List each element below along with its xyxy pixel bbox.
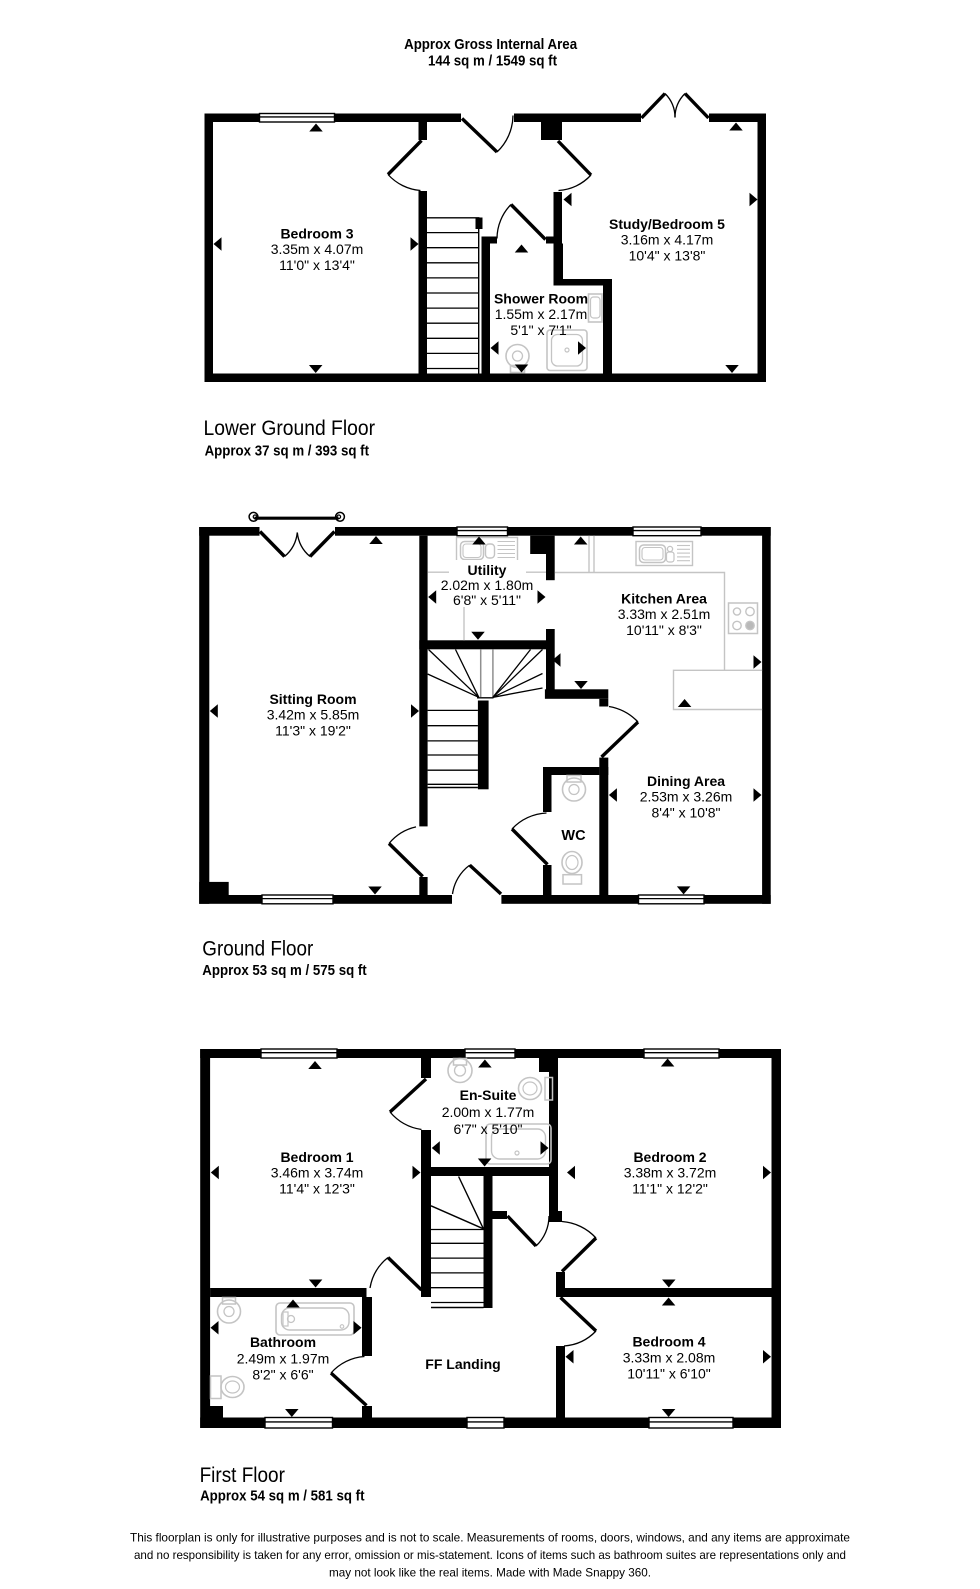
svg-text:8'4" x 10'8": 8'4" x 10'8" — [652, 804, 721, 820]
svg-text:Bedroom 4: Bedroom 4 — [632, 1334, 705, 1350]
svg-text:Bedroom 1: Bedroom 1 — [280, 1149, 353, 1165]
svg-text:11'3" x 19'2": 11'3" x 19'2" — [275, 722, 351, 738]
svg-text:Bedroom 3: Bedroom 3 — [280, 226, 353, 242]
svg-text:Approx 53 sq m / 575 sq ft: Approx 53 sq m / 575 sq ft — [202, 962, 366, 979]
svg-text:Kitchen Area: Kitchen Area — [621, 591, 707, 607]
svg-text:First Floor: First Floor — [200, 1464, 285, 1487]
svg-text:5'1" x 7'1": 5'1" x 7'1" — [510, 322, 571, 338]
svg-text:8'2" x 6'6": 8'2" x 6'6" — [252, 1367, 313, 1383]
svg-text:Dining Area: Dining Area — [647, 773, 725, 789]
svg-text:may not look like the real ite: may not look like the real items. Made w… — [329, 1566, 651, 1580]
svg-text:11'1" x 12'2": 11'1" x 12'2" — [632, 1180, 708, 1196]
svg-text:1.55m x 2.17m: 1.55m x 2.17m — [495, 306, 588, 322]
svg-text:2.02m x 1.80m: 2.02m x 1.80m — [441, 577, 534, 593]
svg-text:10'11" x 6'10": 10'11" x 6'10" — [627, 1366, 711, 1382]
svg-text:144 sq m / 1549 sq ft: 144 sq m / 1549 sq ft — [428, 53, 557, 70]
svg-text:3.42m x 5.85m: 3.42m x 5.85m — [267, 707, 360, 723]
svg-text:En-Suite: En-Suite — [460, 1087, 517, 1103]
svg-text:Shower Room: Shower Room — [494, 291, 588, 307]
svg-text:2.53m x 3.26m: 2.53m x 3.26m — [640, 789, 733, 805]
svg-text:3.46m x 3.74m: 3.46m x 3.74m — [271, 1165, 364, 1181]
svg-text:FF Landing: FF Landing — [425, 1356, 500, 1372]
svg-text:and no responsibility is taken: and no responsibility is taken for any e… — [134, 1548, 846, 1562]
svg-text:11'0" x 13'4": 11'0" x 13'4" — [279, 257, 355, 273]
svg-text:6'8" x 5'11": 6'8" x 5'11" — [453, 592, 521, 608]
svg-text:WC: WC — [561, 828, 586, 844]
svg-text:3.33m x 2.08m: 3.33m x 2.08m — [623, 1350, 716, 1366]
svg-text:3.16m x 4.17m: 3.16m x 4.17m — [621, 232, 714, 248]
svg-text:3.35m x 4.07m: 3.35m x 4.07m — [271, 241, 364, 257]
svg-text:10'11" x 8'3": 10'11" x 8'3" — [626, 622, 702, 638]
svg-text:Utility: Utility — [468, 562, 507, 578]
svg-text:Lower Ground Floor: Lower Ground Floor — [204, 417, 376, 440]
svg-text:11'4" x 12'3": 11'4" x 12'3" — [279, 1180, 355, 1196]
svg-text:2.49m x 1.97m: 2.49m x 1.97m — [237, 1350, 330, 1366]
svg-text:Study/Bedroom 5: Study/Bedroom 5 — [609, 216, 725, 232]
svg-text:3.33m x 2.51m: 3.33m x 2.51m — [618, 606, 711, 622]
svg-text:Approx Gross Internal Area: Approx Gross Internal Area — [404, 36, 578, 53]
svg-text:3.38m x 3.72m: 3.38m x 3.72m — [624, 1165, 717, 1181]
svg-text:Bathroom: Bathroom — [250, 1334, 316, 1350]
svg-text:This floorplan is only for ill: This floorplan is only for illustrative … — [130, 1531, 850, 1545]
svg-text:Sitting Room: Sitting Room — [269, 691, 356, 707]
svg-text:Bedroom 2: Bedroom 2 — [633, 1149, 706, 1165]
svg-text:Approx 37 sq m / 393 sq ft: Approx 37 sq m / 393 sq ft — [205, 443, 369, 460]
svg-text:Ground Floor: Ground Floor — [202, 937, 313, 960]
svg-text:6'7" x 5'10": 6'7" x 5'10" — [454, 1121, 523, 1137]
svg-text:10'4" x 13'8": 10'4" x 13'8" — [629, 247, 706, 263]
svg-text:Approx 54 sq m / 581 sq ft: Approx 54 sq m / 581 sq ft — [200, 1488, 364, 1505]
svg-text:2.00m x 1.77m: 2.00m x 1.77m — [442, 1104, 535, 1120]
